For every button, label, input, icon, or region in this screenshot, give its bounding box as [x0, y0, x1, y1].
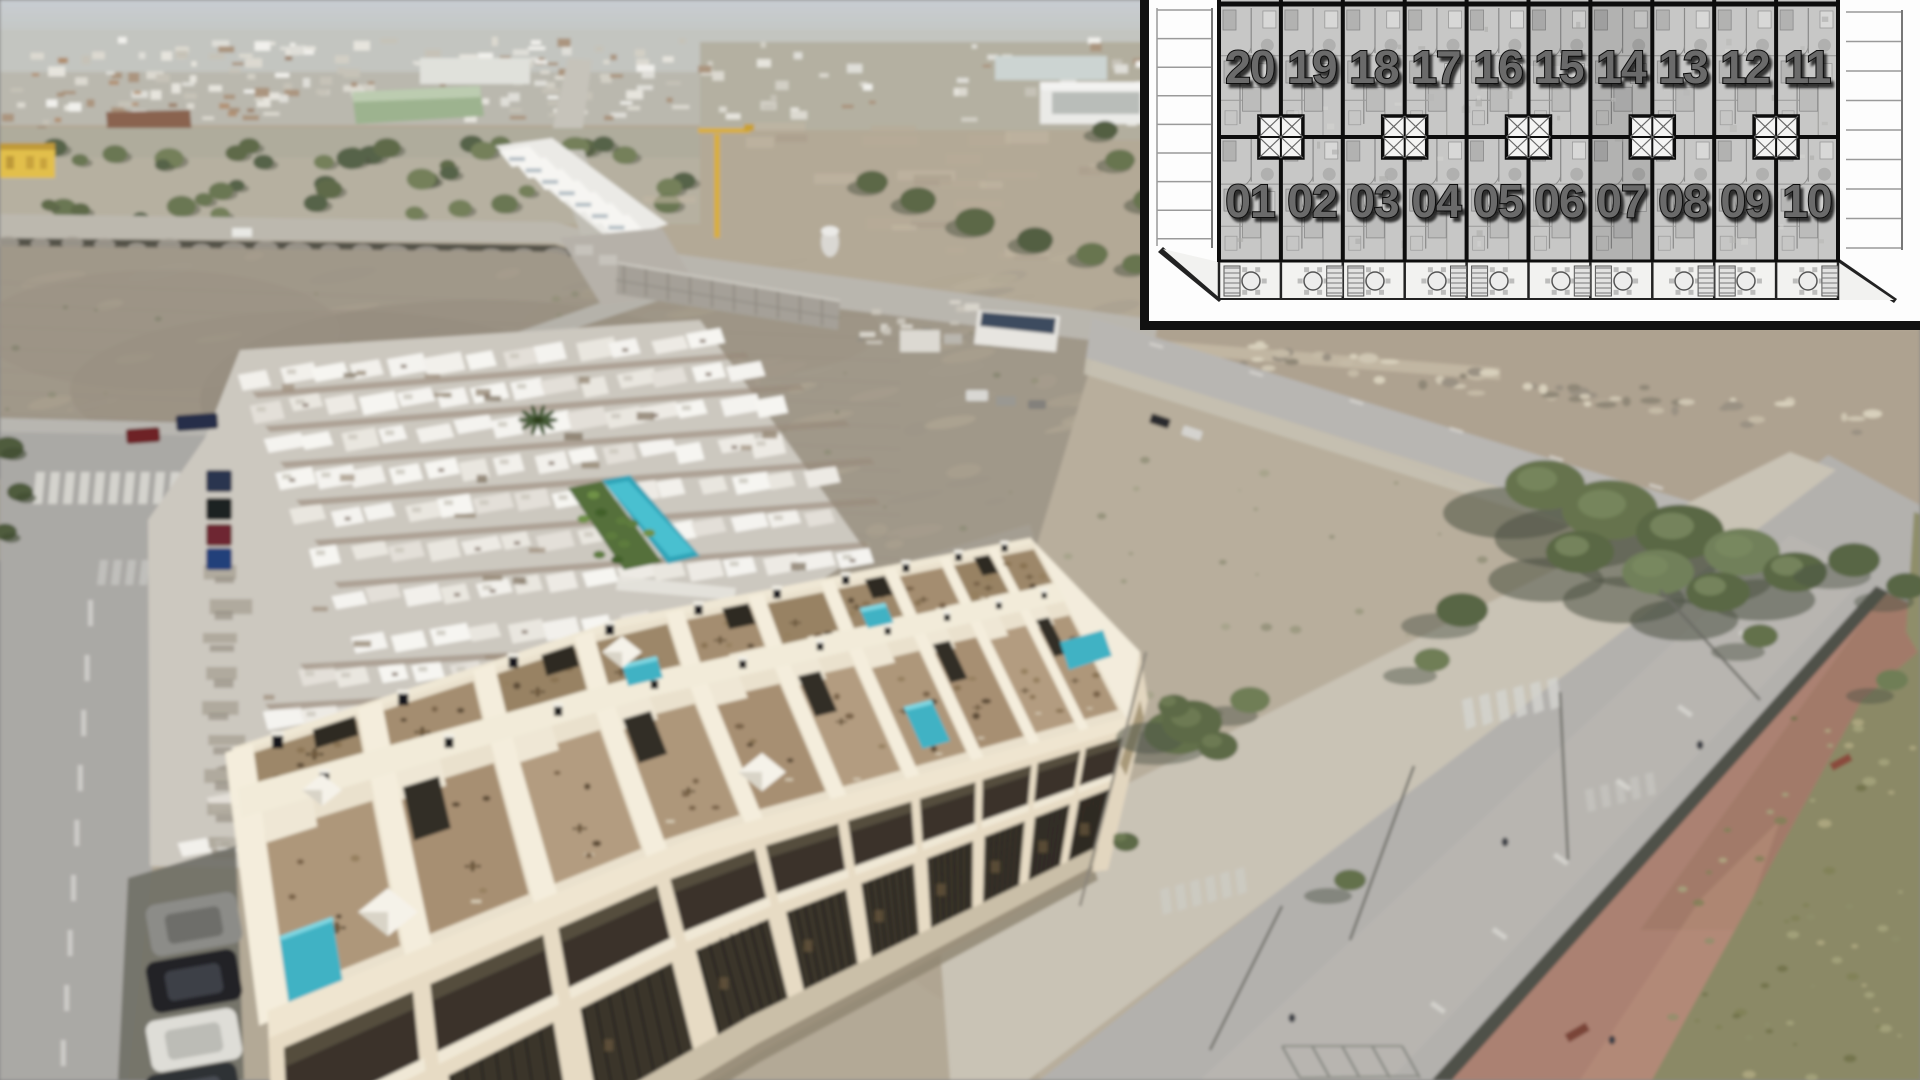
svg-text:19: 19	[1287, 41, 1336, 93]
svg-text:13: 13	[1658, 41, 1707, 93]
svg-text:18: 18	[1349, 41, 1399, 93]
svg-text:09: 09	[1720, 175, 1769, 227]
svg-text:11: 11	[1784, 41, 1831, 93]
svg-text:01: 01	[1225, 175, 1275, 227]
svg-text:15: 15	[1534, 41, 1584, 93]
svg-text:06: 06	[1534, 175, 1583, 227]
svg-text:20: 20	[1225, 41, 1274, 93]
svg-text:14: 14	[1596, 41, 1647, 93]
svg-text:16: 16	[1473, 41, 1522, 93]
svg-text:03: 03	[1349, 175, 1398, 227]
svg-text:08: 08	[1658, 175, 1708, 227]
svg-text:05: 05	[1473, 175, 1523, 227]
svg-text:12: 12	[1720, 41, 1769, 93]
svg-text:17: 17	[1411, 41, 1460, 93]
svg-text:04: 04	[1411, 175, 1462, 227]
svg-text:07: 07	[1596, 175, 1645, 227]
svg-text:10: 10	[1782, 175, 1831, 227]
svg-text:02: 02	[1287, 175, 1336, 227]
